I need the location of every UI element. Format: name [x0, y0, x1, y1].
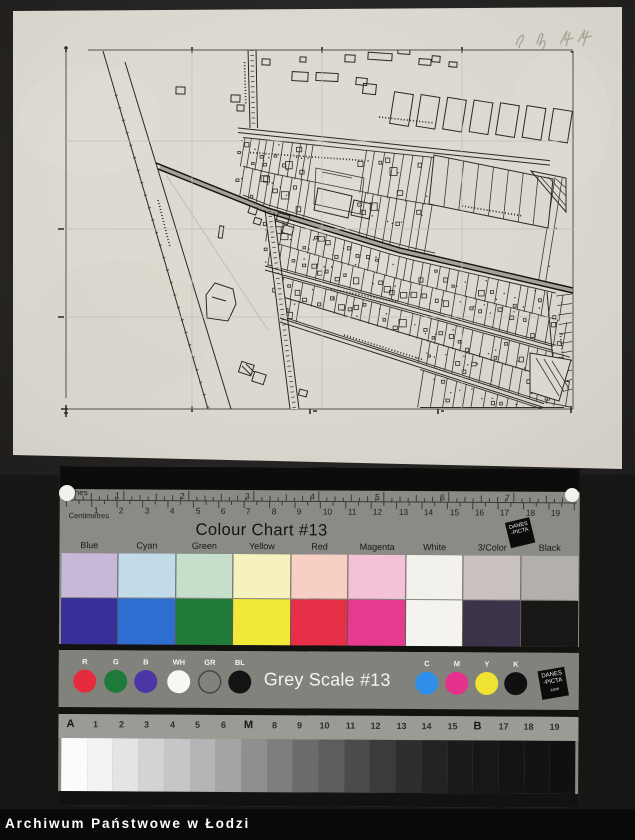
- svg-text:19: 19: [549, 722, 559, 732]
- svg-text:12: 12: [370, 721, 380, 731]
- svg-text:12: 12: [373, 507, 383, 517]
- svg-text:BL: BL: [235, 658, 245, 667]
- svg-text:7: 7: [246, 506, 251, 516]
- svg-text:5: 5: [195, 720, 200, 730]
- svg-text:4: 4: [310, 491, 315, 501]
- svg-text:13: 13: [399, 507, 409, 517]
- svg-text:9: 9: [297, 720, 302, 730]
- svg-text:A: A: [66, 718, 74, 730]
- svg-text:6: 6: [221, 720, 226, 730]
- svg-text:15: 15: [450, 507, 460, 517]
- svg-text:6: 6: [440, 492, 445, 502]
- svg-text:R: R: [82, 657, 88, 666]
- svg-text:8: 8: [272, 720, 277, 730]
- svg-text:16: 16: [475, 507, 485, 517]
- svg-text:Y: Y: [484, 659, 489, 668]
- svg-text:GR: GR: [204, 658, 216, 667]
- svg-text:3: 3: [145, 505, 150, 515]
- svg-text:14: 14: [421, 721, 431, 731]
- svg-text:13: 13: [396, 721, 406, 731]
- svg-text:2: 2: [119, 719, 124, 729]
- svg-text:3: 3: [144, 719, 149, 729]
- svg-text:11: 11: [346, 721, 356, 731]
- svg-text:G: G: [113, 657, 119, 666]
- svg-text:1: 1: [93, 719, 98, 729]
- svg-text:5: 5: [375, 492, 380, 502]
- svg-text:5: 5: [196, 506, 201, 516]
- svg-text:17: 17: [498, 722, 508, 732]
- svg-text:14: 14: [424, 507, 434, 517]
- svg-text:11: 11: [348, 507, 357, 517]
- svg-text:M: M: [454, 659, 460, 668]
- svg-text:M: M: [244, 719, 253, 731]
- svg-text:15: 15: [447, 721, 457, 731]
- svg-text:6: 6: [221, 506, 226, 516]
- svg-text:4: 4: [170, 506, 175, 516]
- svg-text:4: 4: [170, 720, 175, 730]
- svg-text:2: 2: [119, 505, 124, 515]
- svg-text:18: 18: [526, 508, 536, 518]
- svg-text:10: 10: [323, 507, 333, 517]
- svg-text:17: 17: [500, 508, 510, 518]
- svg-text:18: 18: [523, 722, 533, 732]
- svg-text:3: 3: [245, 491, 250, 501]
- svg-text:K: K: [513, 660, 519, 669]
- svg-text:10: 10: [319, 721, 329, 731]
- svg-text:19: 19: [551, 508, 561, 518]
- svg-text:7: 7: [505, 493, 510, 503]
- svg-text:8: 8: [272, 506, 277, 516]
- svg-text:B: B: [143, 657, 149, 666]
- svg-text:WH: WH: [173, 658, 186, 667]
- svg-text:B: B: [473, 720, 481, 732]
- svg-text:9: 9: [297, 506, 302, 516]
- svg-text:C: C: [424, 659, 430, 668]
- svg-text:2: 2: [180, 491, 185, 501]
- svg-text:1: 1: [115, 490, 120, 500]
